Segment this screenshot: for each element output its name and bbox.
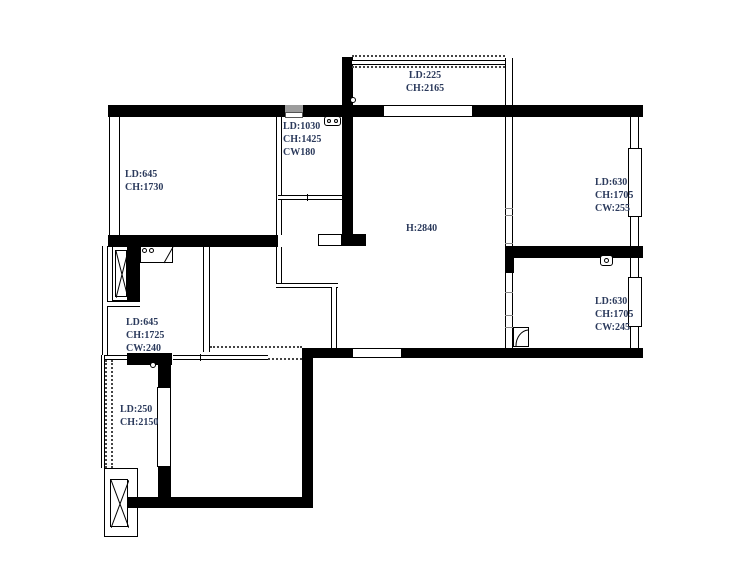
elevator-shaft-icon	[110, 479, 128, 527]
exterior-wall	[402, 348, 643, 358]
elevator-shaft-icon	[115, 250, 127, 297]
exterior-wall	[128, 497, 313, 508]
label-line: H:2840	[406, 222, 437, 235]
balcony-railing	[352, 66, 505, 68]
room-label-bedroom-top-right: LD:630 CH:1705 CW:255	[595, 176, 633, 215]
label-line: LD:645	[125, 168, 163, 181]
label-line: CH:2150	[120, 416, 158, 429]
label-line: CH:1725	[126, 329, 164, 342]
balcony-railing	[352, 60, 505, 65]
window	[383, 105, 473, 117]
room-label-closet: LD:1030 CH:1425 CW180	[283, 120, 321, 159]
label-line: LD:630	[595, 295, 633, 308]
burner-icon	[142, 248, 147, 253]
socket-dot	[327, 119, 331, 123]
interior-wall	[353, 234, 366, 246]
pocket-opening	[318, 234, 342, 246]
balcony-railing	[111, 360, 113, 468]
opening-line	[210, 346, 302, 348]
label-line: CW:245	[595, 321, 633, 334]
socket-icon	[600, 255, 613, 266]
label-line: LD:225	[385, 69, 465, 82]
exterior-wall	[108, 105, 285, 117]
label-line: LD:1030	[283, 120, 321, 133]
exterior-wall	[473, 105, 643, 117]
partition-wall	[276, 117, 282, 235]
circle-marker-icon	[350, 97, 356, 103]
label-line: CH:1730	[125, 181, 163, 194]
label-line: LD:250	[120, 403, 158, 416]
window-wall	[109, 117, 120, 235]
balcony-railing	[352, 55, 505, 57]
socket-dot	[334, 119, 338, 123]
hall-wall	[276, 283, 338, 288]
wall-tick	[505, 208, 513, 209]
balcony-railing	[105, 360, 107, 468]
label-line: CH:1425	[283, 133, 321, 146]
hall-wall	[331, 287, 337, 348]
label-line: CW:255	[595, 202, 633, 215]
interior-wall	[505, 246, 643, 258]
circle-marker-icon	[150, 362, 156, 368]
room-label-living: H:2840	[406, 222, 437, 235]
socket-dot	[604, 258, 609, 263]
sill-tick	[200, 354, 201, 361]
interior-wall	[342, 57, 353, 246]
interior-wall	[505, 246, 514, 273]
wall-tick	[505, 327, 513, 328]
room-label-balcony-top: LD:225 CH:2165	[385, 69, 465, 95]
vent-duct	[285, 105, 303, 112]
vent-duct	[285, 112, 303, 118]
wall-tick	[505, 292, 513, 293]
label-line: CH:1705	[595, 189, 633, 202]
hall-wall	[276, 247, 282, 287]
room-label-kitchen: LD:645 CH:1725 CW:240	[126, 316, 164, 355]
label-line: LD:630	[595, 176, 633, 189]
window	[352, 348, 402, 358]
window-sill	[173, 355, 268, 360]
kitchen-wall	[203, 246, 210, 352]
interior-wall	[158, 467, 171, 502]
closet-partition	[278, 195, 342, 200]
wall-tick	[505, 243, 513, 244]
wall-tick	[505, 215, 513, 216]
label-line: CH:1705	[595, 308, 633, 321]
wall-tick	[505, 315, 513, 316]
room-label-bedroom-bottom-right: LD:630 CH:1705 CW:245	[595, 295, 633, 334]
shaft-wall	[127, 246, 140, 301]
shaft-edge	[107, 301, 140, 307]
label-line: CH:2165	[385, 82, 465, 95]
opening-line	[268, 358, 302, 360]
rooms-left-wall	[505, 58, 513, 348]
room-label-balcony-bottom-left: LD:250 CH:2150	[120, 403, 158, 429]
floor-plan-canvas: LD:225 CH:2165 LD:1030 CH:1425 CW180 LD:…	[0, 0, 750, 587]
partition-tick	[307, 194, 308, 201]
room-label-bedroom-top-left: LD:645 CH:1730	[125, 168, 163, 194]
label-line: CW180	[283, 146, 321, 159]
burner-icon	[149, 248, 154, 253]
door-leaf	[513, 327, 529, 347]
label-line: CW:240	[126, 342, 164, 355]
exterior-wall	[302, 348, 313, 508]
window	[157, 387, 171, 467]
socket-double-icon	[324, 116, 341, 126]
label-line: LD:645	[126, 316, 164, 329]
